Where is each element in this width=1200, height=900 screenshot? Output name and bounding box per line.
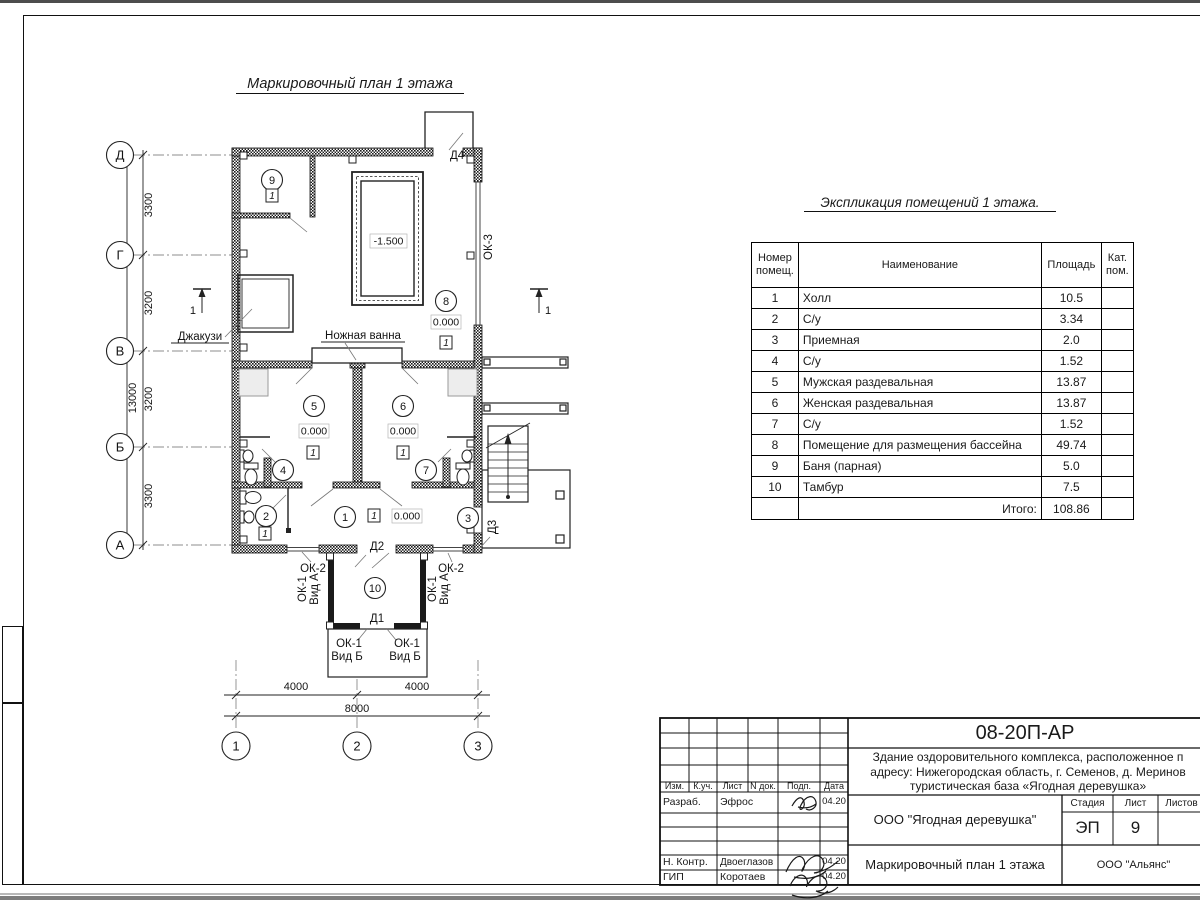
cell-name: Баня (парная): [798, 456, 1041, 477]
axis-row-v: В: [116, 344, 125, 359]
wall-wc7-stub: [443, 458, 450, 487]
floor-flag: 1: [443, 338, 449, 349]
floor-flag: 1: [310, 448, 316, 459]
cell-name: С/у: [798, 351, 1041, 372]
elevation-room6: 0.000: [390, 426, 416, 438]
wall-right-top: [474, 148, 482, 182]
project-line-2: адресу: Нижегородская область, г. Семено…: [852, 765, 1200, 780]
axis-bubbles: [107, 142, 493, 761]
window-label-ok1-b-left: ОК-1: [336, 638, 362, 650]
toilet-icon: [244, 463, 258, 485]
room-tag-9: 9: [269, 175, 275, 187]
project-line-3: туристическая база «Ягодная деревушка»: [852, 779, 1200, 794]
plan-labels: Д4 Д2 Д1 Д3 ОК-3 ОК-2 ОК-2 ОК-1 Вид А ОК…: [178, 150, 499, 663]
room-tag-3: 3: [465, 513, 471, 525]
table-row: 3Приемная2.0: [752, 330, 1134, 351]
row-nkontr-name: Двоеглазов: [717, 855, 778, 870]
dim-13000: 13000: [127, 383, 139, 414]
table-row: 10Тамбур7.5: [752, 477, 1134, 498]
exterior-stairs: [486, 423, 530, 502]
row-gip-role: ГИП: [660, 870, 717, 885]
col-list: Лист: [717, 782, 748, 792]
stage-label: Стадия: [1062, 795, 1113, 812]
door-label-d4: Д4: [450, 150, 465, 162]
cell-name: Холл: [798, 288, 1041, 309]
window-label-ok1-b-right: ОК-1: [394, 638, 420, 650]
col-name: Наименование: [798, 243, 1041, 288]
cell-area: 7.5: [1041, 477, 1101, 498]
table-row: 8Помещение для размещения бассейна49.74: [752, 435, 1134, 456]
table-row: 4С/у1.52: [752, 351, 1134, 372]
cell-n: 3: [752, 330, 799, 351]
col-izm: Изм.: [660, 782, 689, 792]
cell-area: 13.87: [1041, 393, 1101, 414]
cell-cat: [1101, 456, 1133, 477]
table-row: 6Женская раздевальная13.87: [752, 393, 1134, 414]
cell-cat: [1101, 309, 1133, 330]
sink-icon: [240, 511, 254, 523]
window-label-ok3: ОК-3: [483, 234, 495, 260]
dim-4000-left: 4000: [284, 681, 308, 693]
room-tags: 1 2 3 4 5 6 7 8 9 10: [256, 170, 479, 599]
cell-name: Помещение для размещения бассейна: [798, 435, 1041, 456]
cell-empty: [1101, 498, 1133, 520]
wall-row-v-right: [402, 361, 474, 368]
total-value: 108.86: [1041, 498, 1101, 520]
cell-area: 3.34: [1041, 309, 1101, 330]
col-cat: Кат. пом.: [1101, 243, 1133, 288]
explication-title: Экспликация помещений 1 этажа.: [804, 195, 1056, 212]
ramp-rails: [482, 357, 568, 414]
cell-n: 8: [752, 435, 799, 456]
axis-col-3: 3: [474, 739, 481, 754]
project-description: Здание оздоровительного комплекса, распо…: [852, 750, 1200, 794]
contractor-name: ООО "Альянс": [1062, 845, 1200, 885]
floor-flag: 1: [400, 448, 406, 459]
cell-n: 4: [752, 351, 799, 372]
dim-3300-top: 3300: [143, 193, 155, 217]
project-line-1: Здание оздоровительного комплекса, распо…: [852, 750, 1200, 765]
row-nkontr-role: Н. Контр.: [660, 855, 717, 870]
cell-n: 2: [752, 309, 799, 330]
cell-n: 9: [752, 456, 799, 477]
cell-area: 5.0: [1041, 456, 1101, 477]
axis-row-d: Д: [116, 148, 125, 163]
company-name: ООО "Ягодная деревушка": [848, 795, 1062, 845]
wall-corridor-b: [333, 482, 380, 488]
window-label-ok1-right: ОК-1: [427, 576, 439, 602]
elevation-room8: 0.000: [433, 317, 459, 329]
col-ndoc: N док.: [748, 782, 778, 792]
cell-name: Приемная: [798, 330, 1041, 351]
floor-flag: 1: [269, 191, 275, 202]
window-label-vidb-right: Вид Б: [389, 651, 421, 663]
col-podp: Подп.: [778, 782, 820, 792]
cell-n: 10: [752, 477, 799, 498]
room-tag-5: 5: [311, 401, 317, 413]
axis-grid-lines: [134, 155, 478, 731]
dim-3200-b: 3200: [143, 387, 155, 411]
cell-n: 1: [752, 288, 799, 309]
cell-name: С/у: [798, 414, 1041, 435]
door-label-d1: Д1: [370, 613, 384, 625]
wall-bottom-d: [463, 545, 474, 553]
wall-left: [232, 148, 240, 553]
cell-area: 1.52: [1041, 351, 1101, 372]
cell-empty: [752, 498, 799, 520]
cell-cat: [1101, 393, 1133, 414]
floor-flag: 1: [371, 511, 377, 522]
section-mark-label-left: 1: [190, 305, 196, 317]
cell-cat: [1101, 477, 1133, 498]
axis-row-a: А: [116, 538, 125, 553]
wall-right-corner: [474, 533, 482, 553]
axis-row-g: Г: [116, 248, 123, 263]
cell-area: 2.0: [1041, 330, 1101, 351]
cell-area: 13.87: [1041, 372, 1101, 393]
row-gip-name: Коротаев: [717, 870, 778, 885]
toilet-icon: [456, 463, 470, 485]
axis-row-b: Б: [116, 440, 125, 455]
table-row: 9Баня (парная)5.0: [752, 456, 1134, 477]
floor-flag: 1: [262, 529, 268, 540]
wall-lockers-divider: [353, 368, 362, 487]
window-label-vidb-left: Вид Б: [331, 651, 363, 663]
window-label-vida-left: Вид А: [309, 573, 321, 605]
cell-cat: [1101, 414, 1133, 435]
foot-bath: [312, 348, 402, 363]
sink-icon: [240, 450, 253, 462]
wall-right-mid: [474, 325, 482, 507]
row-gip-date: 04.20: [820, 870, 848, 885]
cell-cat: [1101, 330, 1133, 351]
door-label-d3: Д3: [487, 520, 499, 534]
sheet-value: 9: [1113, 812, 1158, 845]
table-row: 7С/у1.52: [752, 414, 1134, 435]
table-row: 1Холл10.5: [752, 288, 1134, 309]
dim-8000: 8000: [345, 703, 369, 715]
cell-area: 49.74: [1041, 435, 1101, 456]
elevation-room1: 0.000: [394, 511, 420, 523]
sheets-label: Листов: [1158, 795, 1200, 812]
col-kuch: К.уч.: [689, 782, 717, 792]
signature-razrab: [792, 797, 816, 810]
wall-bottom-c: [396, 545, 433, 553]
axis-col-2: 2: [353, 739, 360, 754]
row-nkontr-date: 04.20: [820, 855, 848, 870]
section-mark-label-right: 1: [545, 305, 551, 317]
cell-cat: [1101, 435, 1133, 456]
door-label-d2: Д2: [370, 541, 384, 553]
cell-name: Женская раздевальная: [798, 393, 1041, 414]
cell-n: 7: [752, 414, 799, 435]
toilet-icon: [240, 491, 261, 504]
window-label-ok1-left: ОК-1: [297, 576, 309, 602]
entry-canopy-d4: [425, 112, 473, 150]
total-label: Итого:: [798, 498, 1041, 520]
cell-cat: [1101, 288, 1133, 309]
cell-area: 10.5: [1041, 288, 1101, 309]
room-tag-1: 1: [342, 512, 348, 524]
cell-name: Тамбур: [798, 477, 1041, 498]
cell-area: 1.52: [1041, 414, 1101, 435]
elevation-room5: 0.000: [301, 426, 327, 438]
axis-col-1: 1: [232, 739, 239, 754]
room-tag-8: 8: [443, 296, 449, 308]
cell-name: С/у: [798, 309, 1041, 330]
bottom-dimension-labels: 4000 4000 8000: [284, 681, 429, 715]
cell-cat: [1101, 351, 1133, 372]
drawing-name: Маркировочный план 1 этажа: [848, 845, 1062, 885]
jacuzzi-label: Джакузи: [178, 331, 222, 343]
jacuzzi: [238, 275, 293, 332]
row-razrab-date: 04.20: [820, 792, 848, 813]
sink-icon: [462, 450, 474, 462]
dim-4000-right: 4000: [405, 681, 429, 693]
room-tag-7: 7: [423, 465, 429, 477]
row-razrab-name: Эфрос: [717, 792, 778, 813]
col-number: Номер помещ.: [752, 243, 799, 288]
plan-title: Маркировочный план 1 этажа: [236, 76, 464, 94]
stage-value: ЭП: [1062, 812, 1113, 845]
cell-cat: [1101, 372, 1133, 393]
table-total-row: Итого: 108.86: [752, 498, 1134, 520]
col-data: Дата: [820, 782, 848, 792]
room-tag-6: 6: [400, 401, 406, 413]
wall-wc4-stub: [264, 458, 271, 487]
table-row: 5Мужская раздевальная13.87: [752, 372, 1134, 393]
foot-bath-label: Ножная ванна: [325, 330, 402, 342]
wall-sauna-vertical: [310, 156, 315, 217]
elevation-pool: -1.500: [374, 236, 404, 248]
wall-row-v-left: [232, 361, 312, 368]
dim-3200-a: 3200: [143, 291, 155, 315]
room-tag-10: 10: [369, 583, 381, 595]
table-row: 2С/у3.34: [752, 309, 1134, 330]
dim-3300-bottom: 3300: [143, 484, 155, 508]
room-tag-2: 2: [263, 511, 269, 523]
explication-header-row: Номер помещ. Наименование Площадь Кат. п…: [752, 243, 1134, 288]
col-area: Площадь: [1041, 243, 1101, 288]
wall-top: [232, 148, 433, 156]
elevation-marks: -1.500 0.000 0.000 0.000 0.000: [299, 234, 461, 523]
room-tag-4: 4: [280, 465, 286, 477]
doc-number: 08-20П-АР: [850, 718, 1200, 748]
sheet-label: Лист: [1113, 795, 1158, 812]
wall-bottom-b: [319, 545, 357, 553]
cell-n: 5: [752, 372, 799, 393]
explication-table: Номер помещ. Наименование Площадь Кат. п…: [751, 242, 1134, 520]
row-razrab-role: Разраб.: [660, 792, 717, 813]
wall-sauna-horizontal: [232, 213, 290, 218]
cell-name: Мужская раздевальная: [798, 372, 1041, 393]
partition-cap: [286, 528, 291, 533]
window-label-vida-right: Вид А: [439, 573, 451, 605]
wall-bottom-a: [232, 545, 287, 553]
cell-n: 6: [752, 393, 799, 414]
